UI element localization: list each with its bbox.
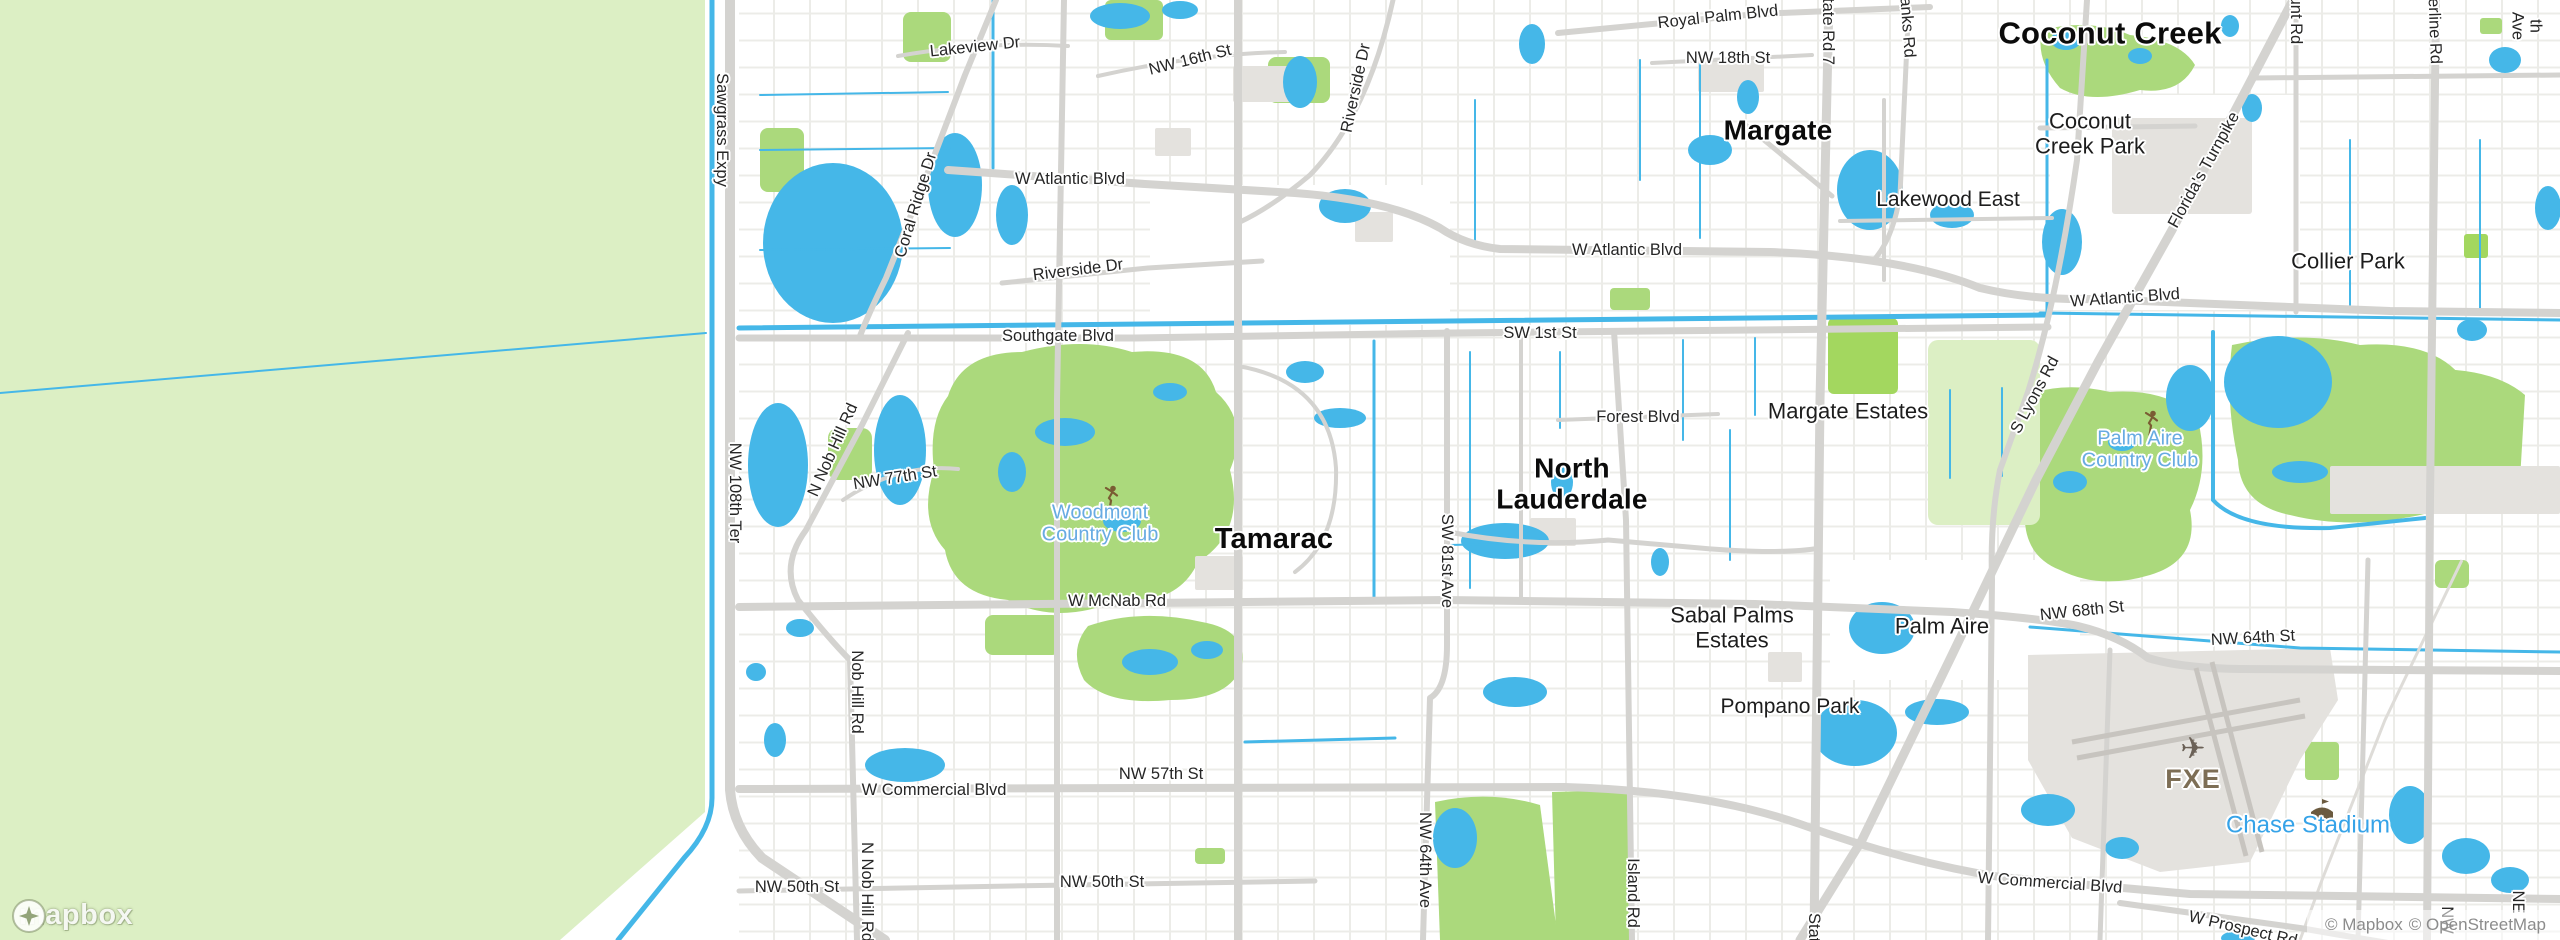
road-label-nob-hill-rd: Nob Hill Rd [848,650,866,733]
attribution-mapbox-link[interactable]: © Mapbox [2325,915,2403,935]
road-label-banks-rd: Banks Rd [1895,0,1918,58]
neighborhood-label-lakewood-east: Lakewood East [1876,188,2020,212]
road-label-forest-blvd: Forest Blvd [1596,408,1679,426]
road-label-nw-68th-st: NW 68th St [2039,597,2125,624]
road-label-state-rd-7: State Rd 7 [1819,0,1837,65]
neighborhood-label-collier-park: Collier Park [2291,250,2405,275]
poi-label-fxe: FXE [2165,764,2221,794]
map-canvas[interactable]: Coconut CreekMargateTamaracNorth Lauderd… [0,0,2560,940]
map-attribution: © Mapbox © OpenStreetMap [2307,910,2560,940]
road-label-blount-rd: Blount Rd [2287,0,2305,44]
neighborhood-label-margate-estates: Margate Estates [1768,400,1928,425]
road-label-n-nob-hill-rd: N Nob Hill Rd [858,842,876,940]
city-label-coconut-creek: Coconut Creek [1998,17,2221,52]
poi-label-palm-aire-country-club: Palm Aire Country Club [2082,428,2199,473]
road-label-w-commercial-blvd: W Commercial Blvd [1977,869,2123,898]
road-label-nw-50th-st: NW 50th St [755,878,839,896]
road-label-s-lyons-rd: S Lyons Rd [2007,353,2063,436]
road-label-nw-18th-st: NW 18th St [1686,49,1770,67]
road-label-sw-81st-ave: SW 81st Ave [1438,514,1456,608]
city-label-north-lauderdale: North Lauderdale [1496,453,1647,516]
road-label-powerline-rd: Powerline Rd [2423,0,2445,64]
road-label-w-commercial-blvd: W Commercial Blvd [862,781,1007,799]
mapbox-logo[interactable]: mapbox [12,899,133,932]
road-label-island-rd: Island Rd [1624,858,1642,928]
road-label-riverside-dr: Riverside Dr [1338,42,1375,135]
neighborhood-label-sabal-palms-estates: Sabal Palms Estates [1670,603,1794,652]
road-label-nw-50th-st: NW 50th St [1060,873,1144,891]
neighborhood-label-pompano-park: Pompano Park [1721,695,1860,719]
poi-label-chase-stadium: Chase Stadium [2226,813,2390,840]
neighborhood-label-coconut-creek-park: Coconut Creek Park [2035,109,2145,158]
road-label-nw-16th-st: NW 16th St [1147,41,1233,79]
poi-label-woodmont-country-club: Woodmont Country Club [1042,502,1159,547]
road-label-riverside-dr: Riverside Dr [1032,255,1124,284]
road-label-state-rd-7: State Rd 7 [1805,913,1823,940]
airplane-icon: ✈ [2180,732,2205,767]
road-label-florida-s-turnpike: Florida's Turnpike [2164,109,2243,231]
road-label-lakeview-dr: Lakeview Dr [929,33,1021,61]
city-label-margate: Margate [1724,114,1833,145]
road-label-nw-77th-st: NW 77th St [852,462,938,493]
road-label-nw-64th-ave: NW 64th Ave [1416,812,1434,908]
road-label-southgate-blvd: Southgate Blvd [1002,327,1114,345]
road-label-w-mcnab-rd: W McNab Rd [1068,592,1166,610]
road-label-nw-57th-st: NW 57th St [1119,765,1203,783]
road-label-w-prospect-rd: W Prospect Rd [2187,908,2299,940]
city-label-tamarac: Tamarac [1215,523,1334,555]
road-label-royal-palm-blvd: Royal Palm Blvd [1657,1,1779,32]
map-labels: Coconut CreekMargateTamaracNorth Lauderd… [0,0,2560,940]
road-label-w-atlantic-blvd: W Atlantic Blvd [2069,285,2180,311]
road-label-th-ave: th Ave [2508,9,2545,43]
road-label-nw-64th-st: NW 64th St [2210,627,2295,650]
road-label-w-atlantic-blvd: W Atlantic Blvd [1015,170,1125,188]
road-label-coral-ridge-dr: Coral Ridge Dr [891,150,941,260]
road-label-nw-108th-ter: NW 108th Ter [726,443,744,544]
road-label-sawgrass-expy: Sawgrass Expy [713,73,731,187]
attribution-osm-link[interactable]: © OpenStreetMap [2409,915,2546,935]
road-label-w-atlantic-blvd: W Atlantic Blvd [1572,241,1682,259]
road-label-n-nob-hill-rd: N Nob Hill Rd [804,401,862,500]
road-label-sw-1st-st: SW 1st St [1503,324,1576,342]
neighborhood-label-palm-aire: Palm Aire [1895,615,1989,640]
